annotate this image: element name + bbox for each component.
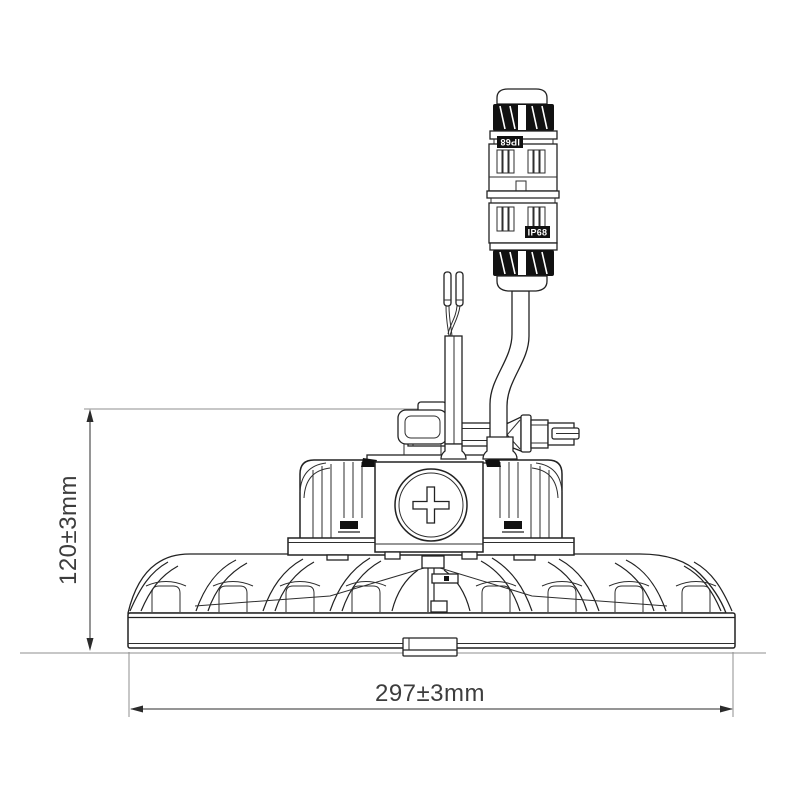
ip68-label-top-badge: IP68 [497,136,523,148]
ip68-connector: IP68 IP68 [487,89,559,291]
ip68-label-bottom-badge: IP68 [525,226,550,238]
connector-top-cap [497,89,547,104]
input-wires [441,272,466,459]
wire-ferrule-left [444,272,451,306]
wire-boot [441,444,466,459]
connector-knurl-top [493,104,554,131]
cable-boot [483,437,517,459]
heat-sink [128,554,735,656]
ip68-label-top: IP68 [500,137,520,147]
connector-bottom-cap [497,276,547,291]
connector-knurl-bottom [493,250,554,276]
height-dimension: 120±3mm [55,409,94,651]
wire-ferrule-right [456,272,463,306]
mounting-plate [361,455,501,559]
height-dimension-label: 120±3mm [55,475,82,585]
width-dimension: 297±3mm [130,680,733,713]
technical-drawing-canvas: IP68 IP68 [0,0,800,800]
width-dimension-label: 297±3mm [375,680,485,707]
ip68-label-bottom: IP68 [528,228,548,238]
highbay-light-dimension-drawing: IP68 IP68 [0,0,800,800]
sensor-cover [403,638,457,656]
